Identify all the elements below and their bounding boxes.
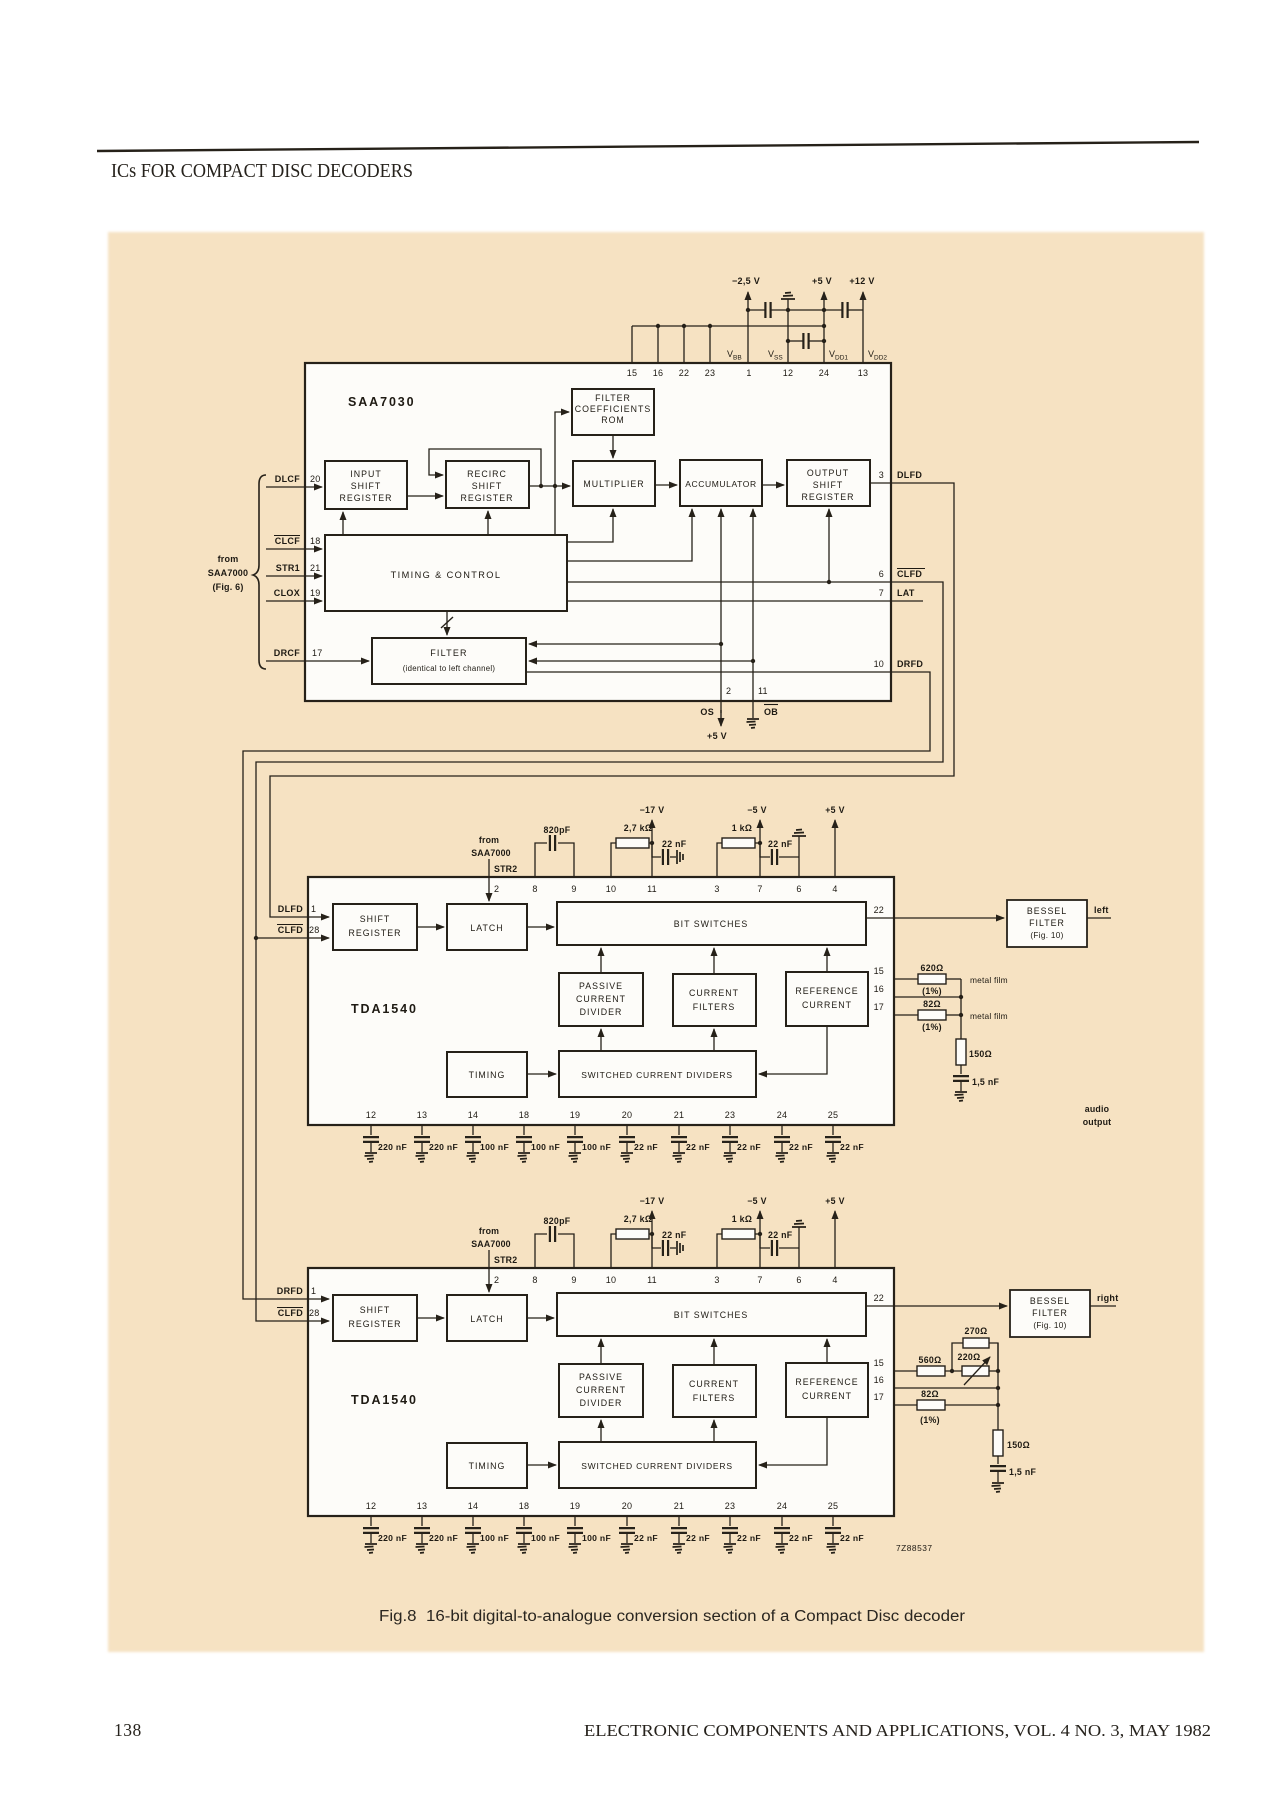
svg-text:9: 9 xyxy=(571,1275,576,1285)
svg-text:19: 19 xyxy=(570,1501,580,1511)
svg-text:6: 6 xyxy=(879,569,884,579)
svg-text:FILTER: FILTER xyxy=(1032,1308,1068,1318)
svg-text:21: 21 xyxy=(674,1110,684,1120)
svg-text:STR2: STR2 xyxy=(494,864,517,874)
svg-text:PASSIVE: PASSIVE xyxy=(579,1372,623,1382)
svg-text:from: from xyxy=(479,835,499,845)
svg-text:ACCUMULATOR: ACCUMULATOR xyxy=(685,479,756,489)
svg-text:from: from xyxy=(218,554,239,564)
svg-text:(Fig. 10): (Fig. 10) xyxy=(1030,931,1063,940)
svg-text:4: 4 xyxy=(832,884,837,894)
svg-text:21: 21 xyxy=(310,563,320,573)
svg-text:22: 22 xyxy=(679,368,689,378)
svg-text:10: 10 xyxy=(606,884,616,894)
svg-text:23: 23 xyxy=(725,1110,735,1120)
svg-text:DLFD: DLFD xyxy=(278,904,303,914)
svg-text:2: 2 xyxy=(494,884,499,894)
svg-text:22 nF: 22 nF xyxy=(789,1142,813,1152)
svg-text:25: 25 xyxy=(828,1501,838,1511)
svg-text:11: 11 xyxy=(758,686,768,696)
svg-text:CURRENT: CURRENT xyxy=(689,988,739,998)
svg-text:138: 138 xyxy=(114,1720,142,1740)
svg-text:+12 V: +12 V xyxy=(849,276,874,286)
svg-text:25: 25 xyxy=(828,1110,838,1120)
svg-text:SHIFT: SHIFT xyxy=(813,480,843,490)
svg-text:RECIRC: RECIRC xyxy=(467,469,507,479)
svg-text:16: 16 xyxy=(874,1375,884,1385)
svg-text:CLFD: CLFD xyxy=(897,569,922,579)
svg-text:22 nF: 22 nF xyxy=(634,1533,658,1543)
svg-text:ROM: ROM xyxy=(601,415,625,425)
svg-text:17: 17 xyxy=(874,1002,884,1012)
svg-text:3: 3 xyxy=(714,1275,719,1285)
svg-text:7: 7 xyxy=(757,1275,762,1285)
svg-text:100 nF: 100 nF xyxy=(480,1533,509,1543)
svg-text:20: 20 xyxy=(622,1110,632,1120)
svg-text:24: 24 xyxy=(777,1501,787,1511)
svg-text:28: 28 xyxy=(309,1308,319,1318)
svg-text:3: 3 xyxy=(714,884,719,894)
svg-text:14: 14 xyxy=(468,1110,478,1120)
svg-text:12: 12 xyxy=(366,1110,376,1120)
svg-text:15: 15 xyxy=(627,368,637,378)
svg-text:22 nF: 22 nF xyxy=(662,1230,687,1240)
svg-text:100 nF: 100 nF xyxy=(531,1142,560,1152)
svg-text:820pF: 820pF xyxy=(544,825,571,835)
svg-text:1: 1 xyxy=(311,904,316,914)
svg-text:13: 13 xyxy=(858,368,868,378)
svg-text:82Ω: 82Ω xyxy=(923,999,941,1009)
svg-text:22 nF: 22 nF xyxy=(840,1142,864,1152)
svg-text:24: 24 xyxy=(819,368,829,378)
svg-text:18: 18 xyxy=(519,1501,529,1511)
svg-text:10: 10 xyxy=(874,659,884,669)
svg-text:22 nF: 22 nF xyxy=(737,1142,761,1152)
svg-text:6: 6 xyxy=(796,884,801,894)
svg-text:TIMING: TIMING xyxy=(469,1070,506,1080)
svg-text:(Fig. 10): (Fig. 10) xyxy=(1033,1321,1066,1330)
svg-text:ELECTRONIC COMPONENTS AND APPL: ELECTRONIC COMPONENTS AND APPLICATIONS, … xyxy=(584,1721,1211,1740)
svg-text:100 nF: 100 nF xyxy=(582,1533,611,1543)
svg-text:22 nF: 22 nF xyxy=(789,1533,813,1543)
svg-text:4: 4 xyxy=(832,1275,837,1285)
svg-text:from: from xyxy=(479,1226,499,1236)
svg-text:100 nF: 100 nF xyxy=(582,1142,611,1152)
svg-text:SHIFT: SHIFT xyxy=(351,481,381,491)
svg-text:620Ω: 620Ω xyxy=(921,963,944,973)
svg-text:−17 V: −17 V xyxy=(640,1196,665,1206)
svg-text:23: 23 xyxy=(705,368,715,378)
svg-text:REFERENCE: REFERENCE xyxy=(795,986,858,996)
svg-text:REFERENCE: REFERENCE xyxy=(795,1377,858,1387)
svg-text:SHIFT: SHIFT xyxy=(472,481,502,491)
svg-text:(identical to left channel): (identical to left channel) xyxy=(403,664,496,673)
svg-text:+5 V: +5 V xyxy=(825,1196,845,1206)
svg-text:22: 22 xyxy=(874,905,884,915)
svg-text:1,5 nF: 1,5 nF xyxy=(1009,1467,1037,1477)
svg-text:CURRENT: CURRENT xyxy=(802,1391,852,1401)
svg-text:OS: OS xyxy=(700,707,714,717)
svg-text:1 kΩ: 1 kΩ xyxy=(732,1214,752,1224)
svg-text:SHIFT: SHIFT xyxy=(360,1305,390,1315)
svg-text:1: 1 xyxy=(746,368,751,378)
svg-text:13: 13 xyxy=(417,1501,427,1511)
svg-text:22 nF: 22 nF xyxy=(662,839,687,849)
svg-text:−5 V: −5 V xyxy=(747,1196,767,1206)
svg-text:820pF: 820pF xyxy=(544,1216,571,1226)
svg-text:metal film: metal film xyxy=(970,975,1008,985)
svg-text:14: 14 xyxy=(468,1501,478,1511)
svg-text:−17 V: −17 V xyxy=(640,805,665,815)
svg-text:18: 18 xyxy=(310,536,320,546)
svg-text:8: 8 xyxy=(532,884,537,894)
svg-text:22 nF: 22 nF xyxy=(768,839,793,849)
svg-text:21: 21 xyxy=(674,1501,684,1511)
svg-text:(1%): (1%) xyxy=(922,986,942,996)
svg-text:11: 11 xyxy=(647,884,657,894)
svg-text:24: 24 xyxy=(777,1110,787,1120)
svg-text:ICs FOR COMPACT DISC DECODERS: ICs FOR COMPACT DISC DECODERS xyxy=(111,160,413,182)
svg-text:REGISTER: REGISTER xyxy=(461,493,514,503)
svg-text:+5 V: +5 V xyxy=(707,731,727,741)
svg-text:17: 17 xyxy=(312,648,322,658)
svg-text:220 nF: 220 nF xyxy=(429,1142,458,1152)
svg-text:7: 7 xyxy=(879,588,884,598)
svg-text:23: 23 xyxy=(725,1501,735,1511)
svg-text:15: 15 xyxy=(874,966,884,976)
svg-text:22 nF: 22 nF xyxy=(737,1533,761,1543)
svg-text:BIT SWITCHES: BIT SWITCHES xyxy=(674,1310,748,1320)
svg-text:DRFD: DRFD xyxy=(897,659,923,669)
svg-text:MULTIPLIER: MULTIPLIER xyxy=(583,479,644,489)
svg-text:TDA1540: TDA1540 xyxy=(351,1002,418,1016)
svg-text:22 nF: 22 nF xyxy=(840,1533,864,1543)
svg-text:TIMING: TIMING xyxy=(469,1461,506,1471)
svg-text:(1%): (1%) xyxy=(920,1415,940,1425)
svg-text:560Ω: 560Ω xyxy=(919,1355,942,1365)
svg-text:OUTPUT: OUTPUT xyxy=(807,468,849,478)
svg-text:220 nF: 220 nF xyxy=(378,1142,407,1152)
svg-text:220 nF: 220 nF xyxy=(378,1533,407,1543)
svg-text:SAA7000: SAA7000 xyxy=(471,848,511,858)
svg-text:SHIFT: SHIFT xyxy=(360,914,390,924)
svg-text:BESSEL: BESSEL xyxy=(1030,1296,1070,1306)
svg-text:22: 22 xyxy=(874,1293,884,1303)
svg-text:22 nF: 22 nF xyxy=(634,1142,658,1152)
svg-text:(Fig. 6): (Fig. 6) xyxy=(212,582,243,592)
svg-text:SAA7030: SAA7030 xyxy=(348,395,416,409)
svg-text:SWITCHED CURRENT DIVIDERS: SWITCHED CURRENT DIVIDERS xyxy=(581,1070,733,1080)
svg-text:16: 16 xyxy=(874,984,884,994)
svg-text:−5 V: −5 V xyxy=(747,805,767,815)
svg-text:22 nF: 22 nF xyxy=(686,1533,710,1543)
svg-text:220 nF: 220 nF xyxy=(429,1533,458,1543)
svg-text:16: 16 xyxy=(653,368,663,378)
svg-text:270Ω: 270Ω xyxy=(965,1326,988,1336)
svg-text:LATCH: LATCH xyxy=(470,923,503,933)
svg-text:CLFD: CLFD xyxy=(278,1308,303,1318)
svg-text:9: 9 xyxy=(571,884,576,894)
svg-text:220Ω: 220Ω xyxy=(958,1352,981,1362)
svg-text:11: 11 xyxy=(647,1275,657,1285)
svg-text:2,7 kΩ: 2,7 kΩ xyxy=(624,823,652,833)
svg-text:CURRENT: CURRENT xyxy=(802,1000,852,1010)
svg-text:INPUT: INPUT xyxy=(350,469,381,479)
svg-text:CURRENT: CURRENT xyxy=(576,1385,626,1395)
svg-text:100 nF: 100 nF xyxy=(480,1142,509,1152)
svg-text:BESSEL: BESSEL xyxy=(1027,906,1067,916)
svg-text:TIMING & CONTROL: TIMING & CONTROL xyxy=(391,570,502,580)
svg-text:3: 3 xyxy=(879,470,884,480)
svg-text:−2,5 V: −2,5 V xyxy=(732,276,760,286)
svg-text:(1%): (1%) xyxy=(922,1022,942,1032)
svg-text:STR1: STR1 xyxy=(276,563,300,573)
svg-text:FILTERS: FILTERS xyxy=(693,1002,736,1012)
svg-text:FILTERS: FILTERS xyxy=(693,1393,736,1403)
svg-text:2,7 kΩ: 2,7 kΩ xyxy=(624,1214,652,1224)
svg-text:REGISTER: REGISTER xyxy=(802,492,855,502)
svg-text:LATCH: LATCH xyxy=(470,1314,503,1324)
svg-text:FILTER: FILTER xyxy=(1029,918,1065,928)
svg-text:6: 6 xyxy=(796,1275,801,1285)
svg-text:1: 1 xyxy=(311,1286,316,1296)
svg-text:DIVIDER: DIVIDER xyxy=(580,1398,623,1408)
svg-text:20: 20 xyxy=(622,1501,632,1511)
svg-text:REGISTER: REGISTER xyxy=(349,1319,402,1329)
svg-text:28: 28 xyxy=(309,925,319,935)
svg-text:100 nF: 100 nF xyxy=(531,1533,560,1543)
svg-text:82Ω: 82Ω xyxy=(921,1389,939,1399)
svg-text:19: 19 xyxy=(310,588,320,598)
svg-text:SAA7000: SAA7000 xyxy=(208,568,248,578)
svg-text:1,5 nF: 1,5 nF xyxy=(972,1077,1000,1087)
svg-text:right: right xyxy=(1097,1293,1119,1303)
svg-text:1 kΩ: 1 kΩ xyxy=(732,823,752,833)
svg-text:12: 12 xyxy=(783,368,793,378)
svg-text:7Z88537: 7Z88537 xyxy=(896,1543,933,1553)
svg-text:left: left xyxy=(1094,905,1109,915)
svg-text:17: 17 xyxy=(874,1392,884,1402)
svg-text:13: 13 xyxy=(417,1110,427,1120)
svg-text:BIT SWITCHES: BIT SWITCHES xyxy=(674,919,748,929)
svg-text:FILTER: FILTER xyxy=(430,648,468,658)
svg-text:10: 10 xyxy=(606,1275,616,1285)
svg-text:20: 20 xyxy=(310,474,320,484)
svg-text:DRCF: DRCF xyxy=(274,648,300,658)
svg-text:metal film: metal film xyxy=(970,1011,1008,1021)
svg-text:DIVIDER: DIVIDER xyxy=(580,1007,623,1017)
svg-text:output: output xyxy=(1083,1117,1112,1127)
svg-text:PASSIVE: PASSIVE xyxy=(579,981,623,991)
svg-text:15: 15 xyxy=(874,1358,884,1368)
svg-text:22 nF: 22 nF xyxy=(768,1230,793,1240)
svg-text:Fig.8 16-bit digital-to-analo: Fig.8 16-bit digital-to-analogue convers… xyxy=(379,1608,965,1625)
svg-text:19: 19 xyxy=(570,1110,580,1120)
svg-text:12: 12 xyxy=(366,1501,376,1511)
svg-text:DLFD: DLFD xyxy=(897,470,922,480)
svg-text:2: 2 xyxy=(494,1275,499,1285)
svg-text:OB: OB xyxy=(764,707,778,717)
svg-text:TDA1540: TDA1540 xyxy=(351,1393,418,1407)
svg-text:REGISTER: REGISTER xyxy=(349,928,402,938)
svg-text:7: 7 xyxy=(757,884,762,894)
svg-text:8: 8 xyxy=(532,1275,537,1285)
svg-text:FILTER: FILTER xyxy=(595,393,631,403)
svg-text:CURRENT: CURRENT xyxy=(576,994,626,1004)
svg-text:2: 2 xyxy=(726,686,731,696)
svg-text:22 nF: 22 nF xyxy=(686,1142,710,1152)
svg-text:CLOX: CLOX xyxy=(274,588,300,598)
svg-text:CURRENT: CURRENT xyxy=(689,1379,739,1389)
svg-text:STR2: STR2 xyxy=(494,1255,517,1265)
svg-text:+5 V: +5 V xyxy=(825,805,845,815)
svg-text:150Ω: 150Ω xyxy=(1007,1440,1030,1450)
svg-text:18: 18 xyxy=(519,1110,529,1120)
svg-text:DRFD: DRFD xyxy=(277,1286,303,1296)
svg-text:audio: audio xyxy=(1085,1104,1110,1114)
svg-text:SWITCHED CURRENT DIVIDERS: SWITCHED CURRENT DIVIDERS xyxy=(581,1461,733,1471)
svg-text:CLFD: CLFD xyxy=(278,925,303,935)
svg-text:150Ω: 150Ω xyxy=(969,1049,992,1059)
svg-text:REGISTER: REGISTER xyxy=(340,493,393,503)
svg-text:LAT: LAT xyxy=(897,588,915,598)
svg-text:COEFFICIENTS: COEFFICIENTS xyxy=(575,404,652,414)
svg-text:SAA7000: SAA7000 xyxy=(471,1239,511,1249)
svg-text:+5 V: +5 V xyxy=(812,276,832,286)
svg-text:CLCF: CLCF xyxy=(275,536,300,546)
svg-text:DLCF: DLCF xyxy=(275,474,300,484)
